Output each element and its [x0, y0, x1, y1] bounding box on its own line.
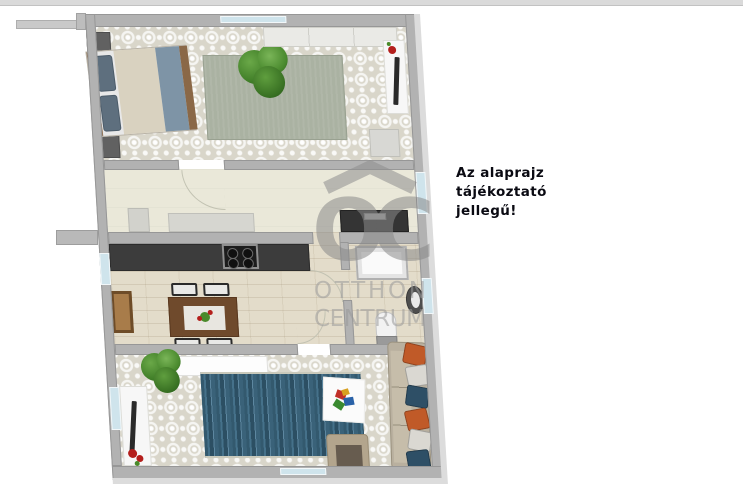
note-line-2: tájékoztató: [456, 183, 586, 202]
plant-bedroom: [233, 42, 294, 100]
window-left-upper: [99, 253, 111, 285]
wall-hall-kitchen: [108, 232, 314, 244]
tv-console-bedroom: [383, 40, 409, 114]
sofa-pillow-orange: [404, 407, 431, 432]
bed-pillow: [99, 95, 122, 132]
floorplan-canvas: OC OTTHON CENTRUM Az alaprajz tájékoztat…: [0, 0, 743, 500]
tv-screen: [393, 57, 399, 105]
kitchen-counter: [109, 244, 311, 271]
double-bed: [85, 45, 196, 138]
centerpiece-flower: [208, 310, 213, 315]
burner: [242, 258, 254, 269]
brand-word-centrum: CENTRUM: [314, 306, 426, 332]
dining-table: [168, 297, 239, 337]
disclaimer-note: Az alaprajz tájékoztató jellegű!: [456, 164, 586, 221]
top-gray-bar: [0, 0, 743, 6]
tv-screen: [129, 401, 136, 455]
wardrobe: [263, 27, 398, 47]
plant-leaf: [153, 367, 181, 393]
brand-word-otthon: OTTHON: [314, 278, 426, 304]
brown-cabinet: [110, 291, 133, 333]
exterior-wall-strip: [16, 20, 79, 29]
window-bottom: [280, 468, 326, 475]
dining-chair: [171, 283, 198, 296]
play-mat: [323, 377, 366, 424]
toy-blue: [343, 397, 354, 406]
exterior-wall-stub: [56, 230, 98, 245]
wall-bedroom-hall-left: [104, 160, 180, 170]
hall-doormat: [128, 208, 150, 232]
brand-initials: OC: [312, 181, 430, 281]
otthon-centrum-watermark: OC OTTHON CENTRUM: [306, 160, 434, 346]
tv-console-living: [119, 386, 152, 466]
note-line-3: jellegű!: [456, 202, 586, 221]
burner: [227, 258, 239, 269]
centerpiece-flower: [197, 316, 202, 321]
pouf: [369, 129, 401, 157]
window-top: [220, 16, 286, 23]
dining-chair: [203, 283, 230, 296]
hall-bench: [168, 213, 255, 232]
note-line-1: Az alaprajz: [456, 164, 586, 183]
decor-red-vase: [388, 46, 396, 54]
toy-yellow: [341, 388, 350, 396]
stove: [222, 244, 259, 269]
wall-bottom-highlight: [113, 478, 446, 484]
